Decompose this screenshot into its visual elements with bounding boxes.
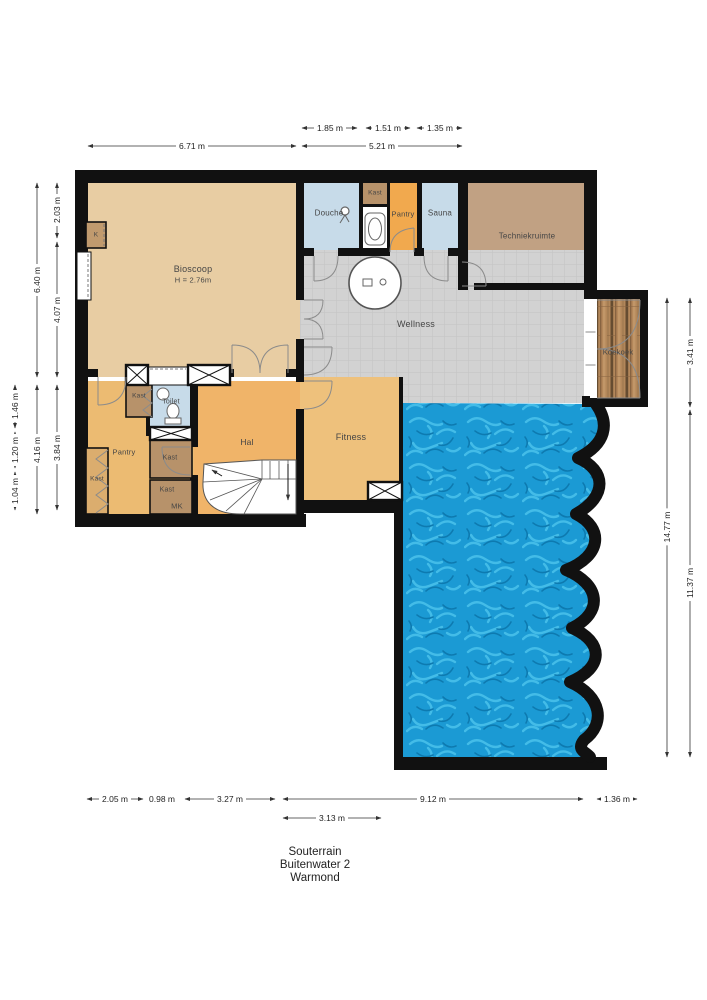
toilet-cistern [165, 418, 181, 424]
room-douche [300, 183, 362, 256]
room-pantry-top [390, 183, 417, 256]
toilet-bowl [167, 404, 179, 419]
room-bioscoop [82, 176, 304, 377]
bath-control [380, 279, 386, 285]
round-bath [349, 257, 401, 309]
staircase [203, 460, 296, 514]
room-kast-top [362, 183, 389, 207]
shower-head [341, 207, 349, 215]
washbasin-bowl [369, 218, 382, 240]
bath-tap [363, 279, 372, 286]
room-sauna [422, 183, 460, 256]
floor-plan-page: 1.85 m 1.51 m 1.35 m 6.71 m 5.21 m 2.03 … [0, 0, 707, 1000]
toilet-sink [157, 388, 169, 400]
koekoek-door-strip [584, 299, 597, 398]
floor-plan-drawing [0, 0, 707, 1000]
